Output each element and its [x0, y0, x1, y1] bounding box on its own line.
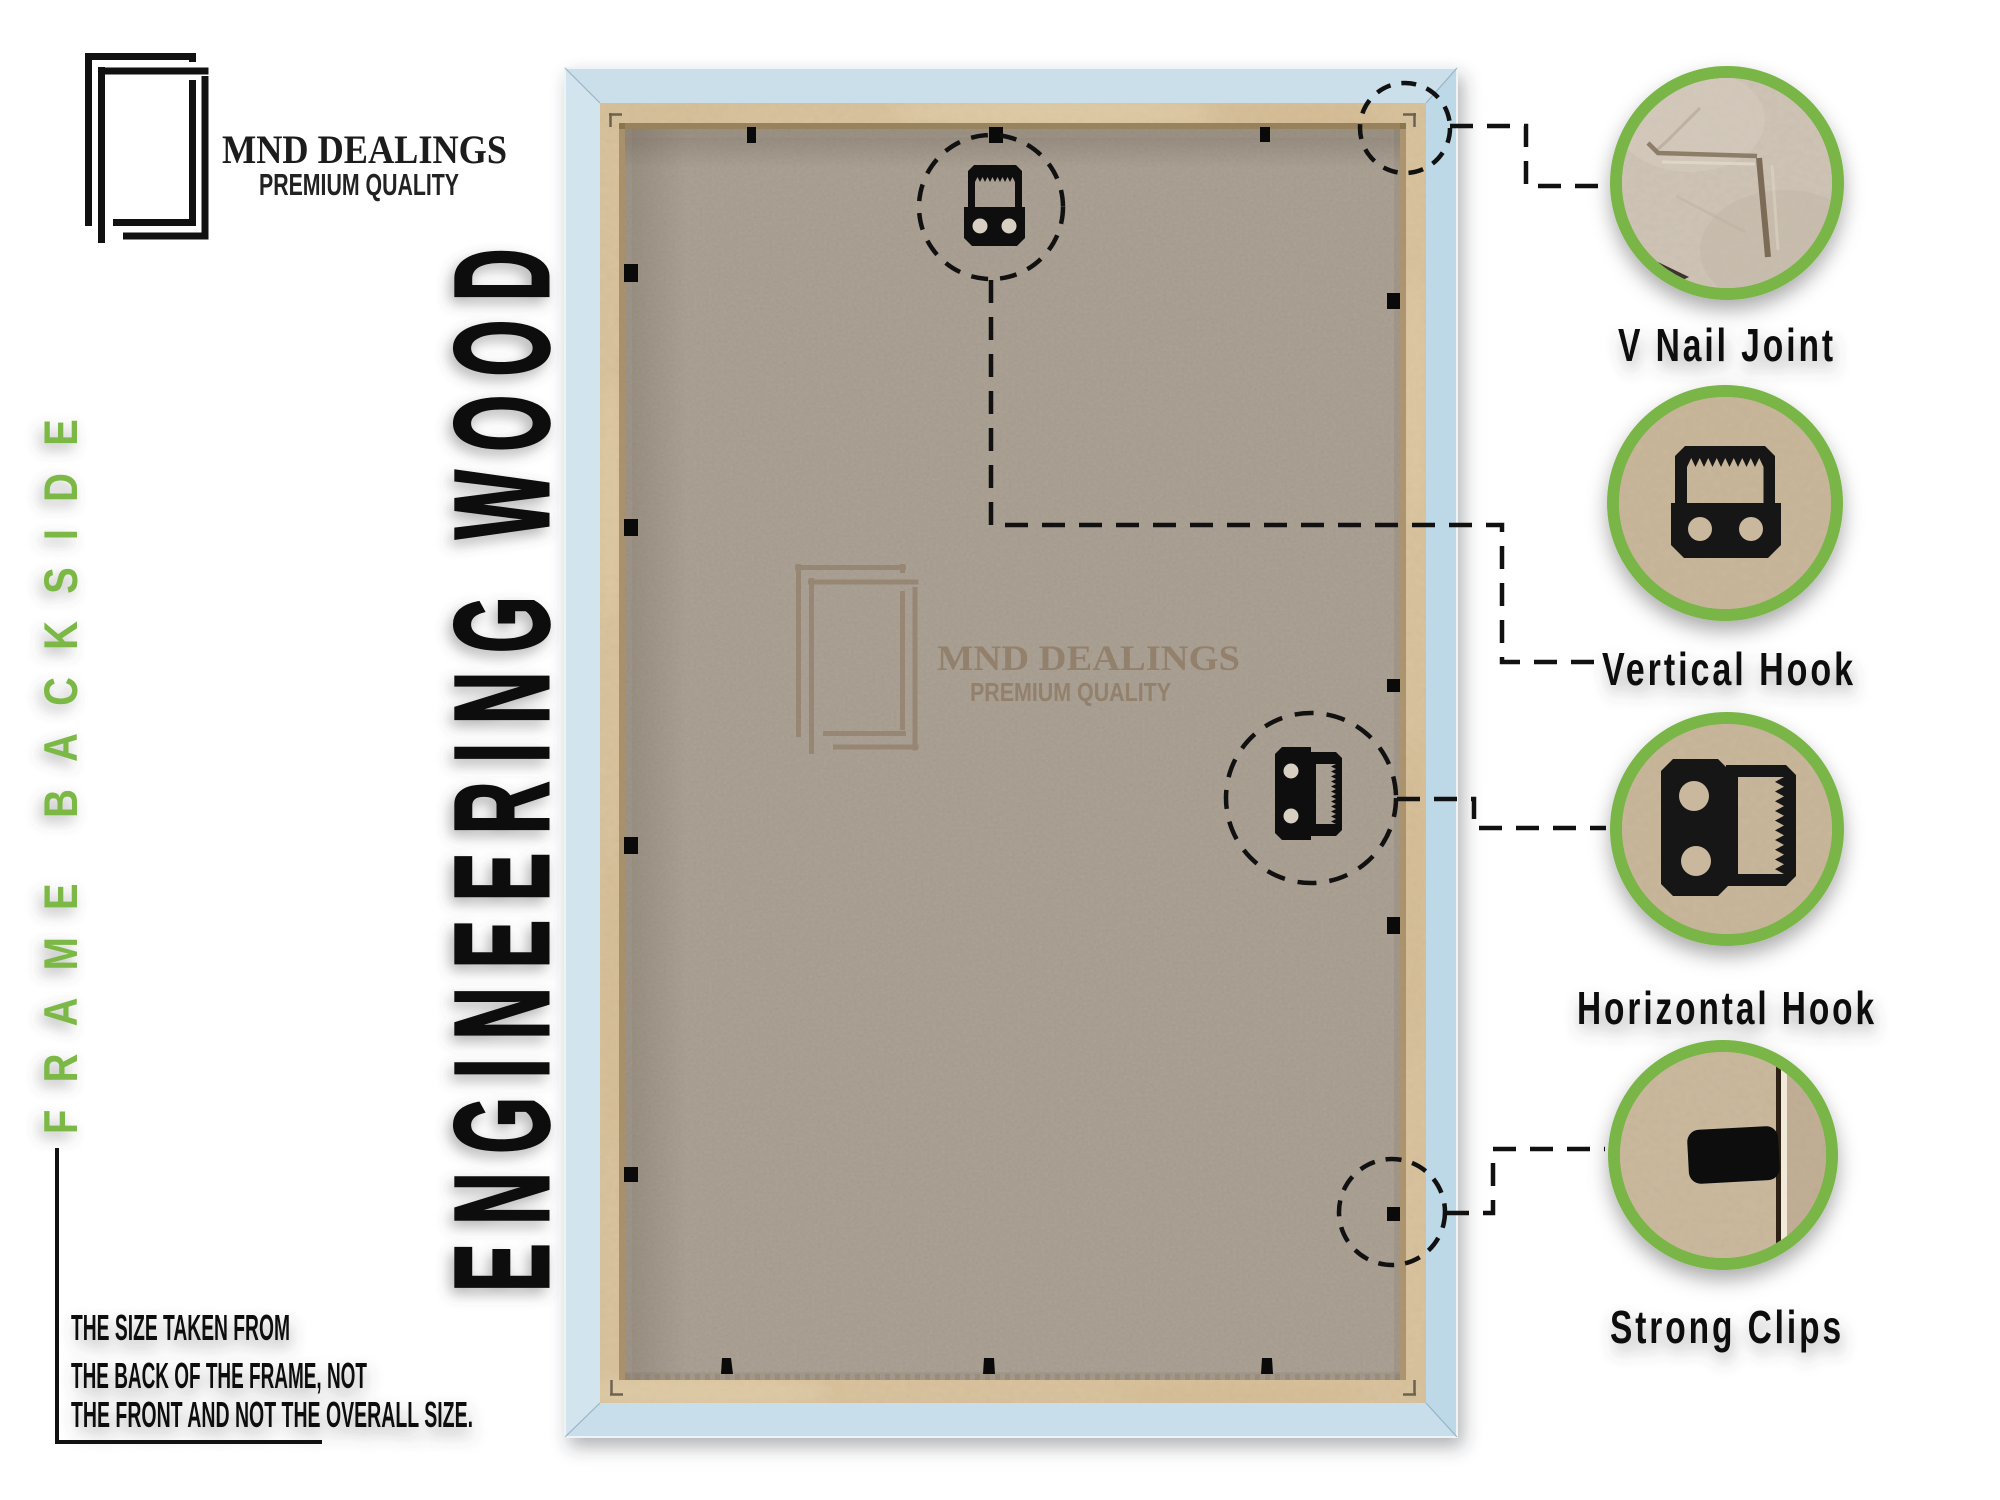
svg-text:V Nail Joint: V Nail Joint	[1618, 319, 1836, 371]
svg-text:Vertical Hook: Vertical Hook	[1602, 643, 1856, 695]
svg-text:THE BACK OF THE FRAME, NOT: THE BACK OF THE FRAME, NOT	[71, 1355, 367, 1396]
svg-text:THE SIZE TAKEN FROM: THE SIZE TAKEN FROM	[71, 1307, 290, 1348]
svg-text:THE FRONT AND NOT THE OVERALL: THE FRONT AND NOT THE OVERALL SIZE.	[71, 1394, 473, 1435]
svg-text:PREMIUM QUALITY: PREMIUM QUALITY	[259, 167, 459, 202]
svg-text:FRAME BACKSIDE: FRAME BACKSIDE	[34, 392, 87, 1134]
svg-text:Horizontal Hook: Horizontal Hook	[1577, 982, 1877, 1034]
svg-text:MND DEALINGS: MND DEALINGS	[937, 638, 1240, 678]
svg-text:MND DEALINGS: MND DEALINGS	[222, 127, 507, 172]
svg-text:PREMIUM QUALITY: PREMIUM QUALITY	[970, 677, 1171, 707]
svg-text:ENGINEERING WOOD: ENGINEERING WOOD	[428, 230, 577, 1292]
svg-text:Strong Clips: Strong Clips	[1610, 1301, 1844, 1353]
